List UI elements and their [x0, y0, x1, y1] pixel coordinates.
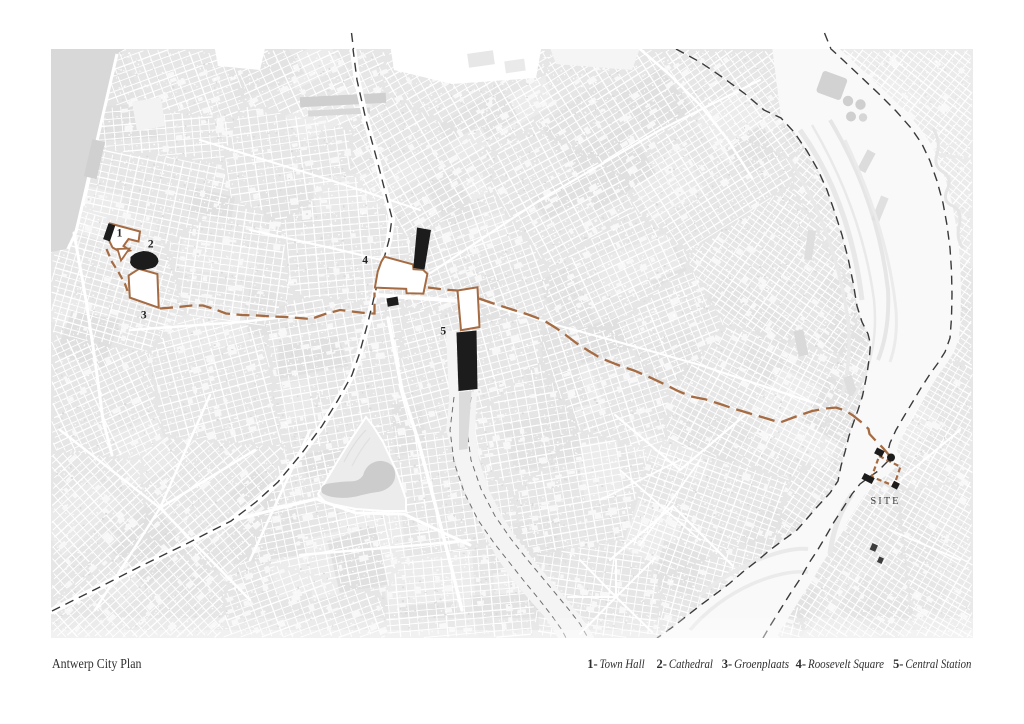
svg-text:SITE: SITE: [870, 496, 900, 507]
svg-text:2: 2: [148, 239, 154, 251]
svg-text:Antwerp City Plan: Antwerp City Plan: [52, 657, 142, 672]
svg-text:4-Roosevelt Square: 4-Roosevelt Square: [796, 657, 885, 671]
svg-text:5-Central Station: 5-Central Station: [893, 657, 971, 671]
svg-text:1: 1: [117, 228, 123, 240]
svg-text:4: 4: [362, 254, 368, 266]
svg-text:1-Town Hall: 1-Town Hall: [587, 657, 645, 671]
svg-text:3-Groenplaats: 3-Groenplaats: [722, 657, 790, 671]
svg-text:5: 5: [440, 326, 446, 338]
svg-text:2-Cathedral: 2-Cathedral: [657, 657, 714, 671]
svg-text:3: 3: [141, 310, 147, 322]
